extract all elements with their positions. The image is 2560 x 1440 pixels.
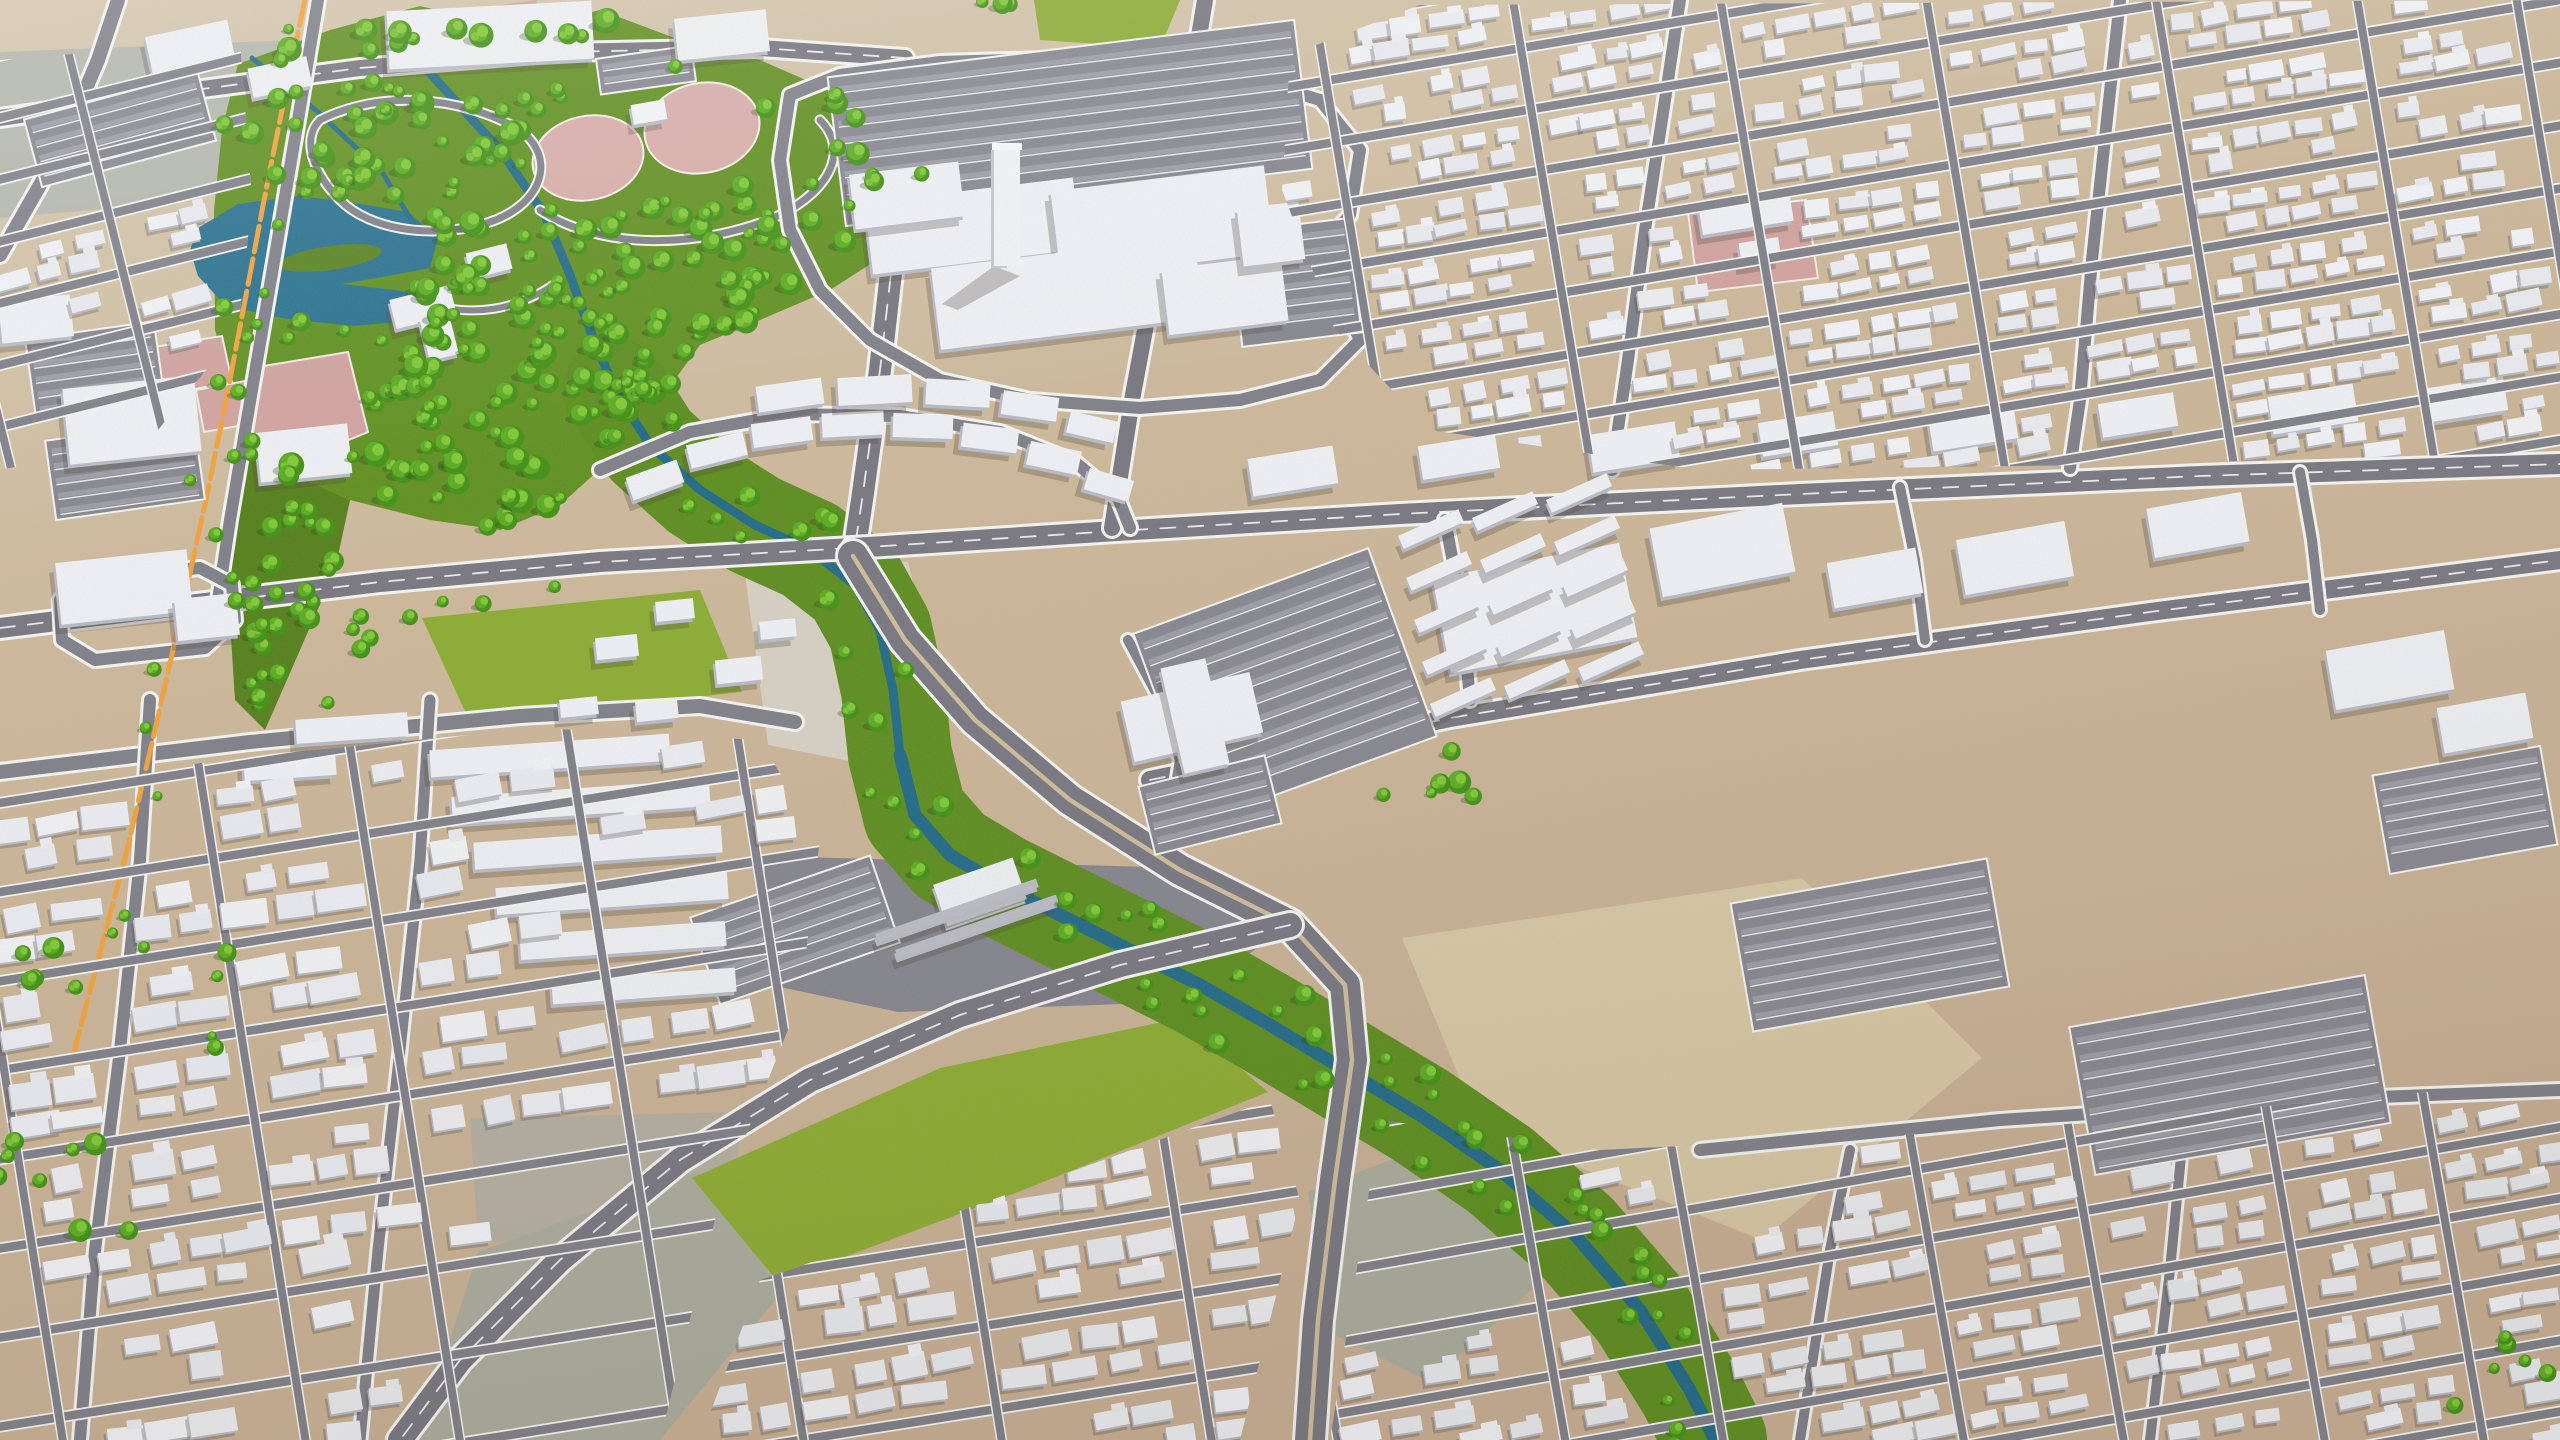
grain-overlay (0, 0, 2560, 1440)
map-canvas (0, 0, 2560, 1440)
city-3d-map-render (0, 0, 2560, 1440)
lighting-layer (0, 0, 2560, 1440)
